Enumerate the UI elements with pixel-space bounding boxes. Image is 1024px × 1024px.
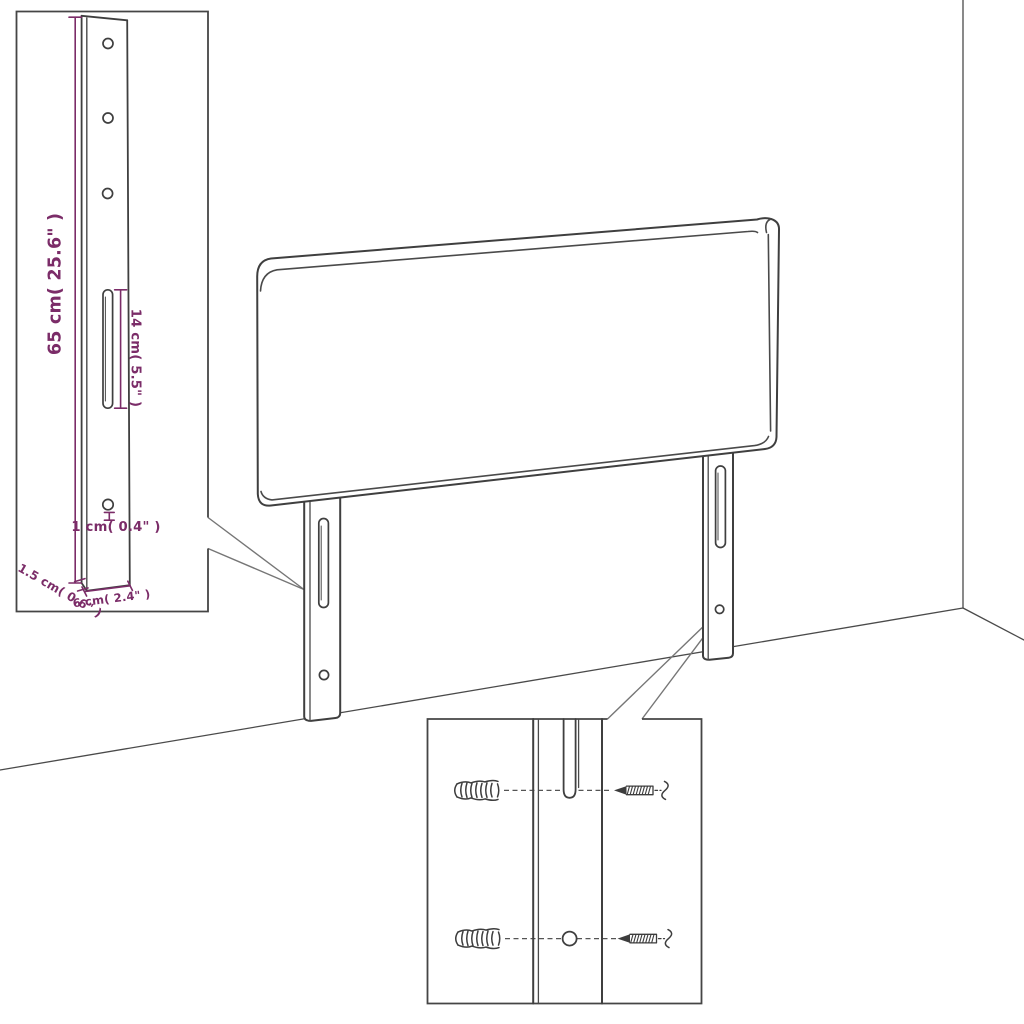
slot-length-label: 14 cm( 5.5" ) [128, 309, 143, 408]
slot-end-closeup [564, 719, 576, 798]
headboard-outline [257, 218, 779, 505]
leg-closeup-drawing [533, 719, 602, 1004]
leg-hole-bottom [103, 499, 113, 509]
product-image: 65 cm( 25.6" ) 14 cm( 5.5" ) 1 cm( 0.4" … [0, 0, 1024, 1024]
left-leg [304, 494, 340, 721]
leg-hole-lower [103, 189, 113, 199]
leg-height-dimension: 65 cm( 25.6" ) [46, 17, 82, 583]
wall-anchor-icon [455, 781, 499, 801]
leg-detail-drawing [82, 16, 130, 591]
floor-line-left [0, 608, 963, 770]
mounting-hole-closeup [563, 932, 577, 946]
screw-icon [614, 781, 668, 799]
wall-anchor-icon [456, 929, 500, 949]
leg-hole-middle [103, 113, 113, 123]
mounting-guides [504, 790, 617, 938]
right-leg [703, 448, 733, 660]
right-leg-screw-hole [715, 605, 723, 613]
screw-icon [618, 930, 672, 948]
mounting-detail-inset [428, 719, 702, 1004]
hole-diameter-label: 1 cm( 0.4" ) [71, 520, 160, 535]
hole-diameter-dimension: 1 cm( 0.4" ) [71, 512, 160, 535]
leg-slot-detail [103, 290, 113, 408]
floor-line-right [963, 608, 1024, 640]
leg-hole-top [103, 39, 113, 49]
leg-detail-inset: 65 cm( 25.6" ) 14 cm( 5.5" ) 1 cm( 0.4" … [15, 12, 208, 621]
headboard-panel [257, 218, 779, 505]
leg-height-label: 65 cm( 25.6" ) [46, 213, 66, 355]
leg-detail-callout [208, 518, 304, 590]
